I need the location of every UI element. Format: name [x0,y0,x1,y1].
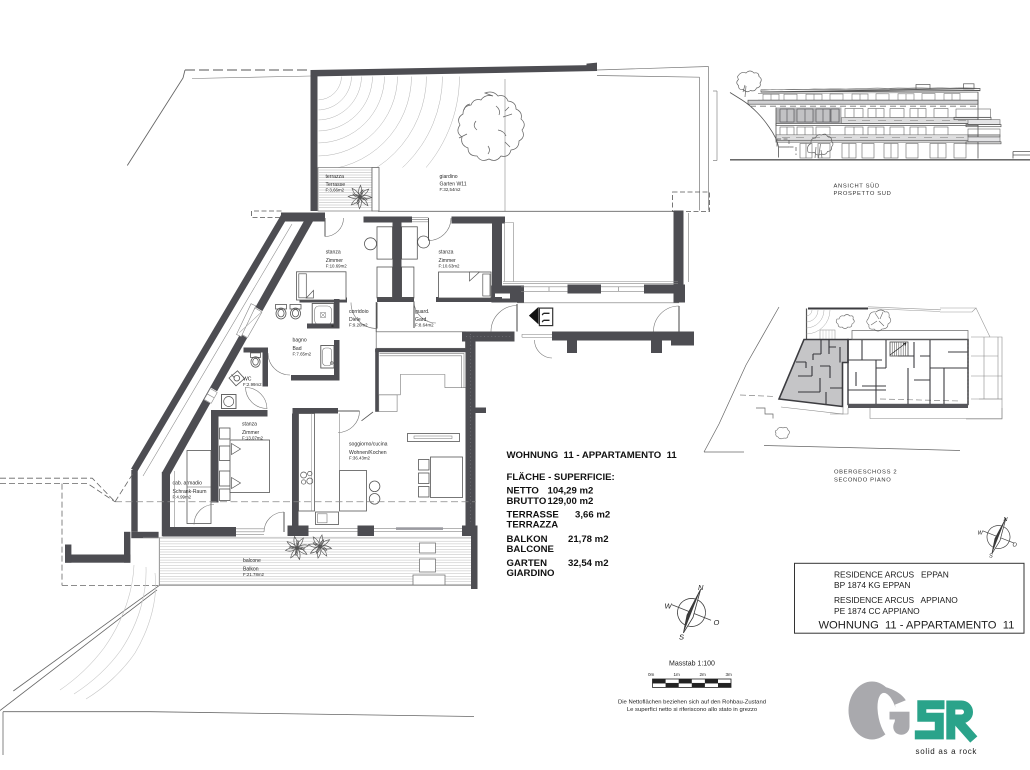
svg-text:N: N [698,583,704,592]
svg-text:GIARDINO: GIARDINO [507,568,556,579]
svg-text:W: W [665,602,673,611]
svg-text:F:21.78m2: F:21.78m2 [243,572,265,577]
svg-text:RESIDENCE ARCUS APPIANO: RESIDENCE ARCUS APPIANO [834,595,958,605]
svg-text:104,29 m2: 104,29 m2 [548,486,594,497]
svg-text:stanza: stanza [242,422,257,428]
svg-text:F:9.20m2: F:9.20m2 [349,323,368,328]
svg-text:SECONDO PIANO: SECONDO PIANO [834,478,891,484]
svg-text:solid as a rock: solid as a rock [916,747,978,756]
svg-text:stanza: stanza [439,249,454,255]
svg-text:S: S [679,633,684,642]
svg-text:Masstab 1:100: Masstab 1:100 [669,661,715,668]
svg-text:stanza: stanza [326,249,341,255]
svg-text:F:7.65m2: F:7.65m2 [293,352,312,357]
svg-text:129,00 m2: 129,00 m2 [548,496,594,507]
svg-text:F:10.63m2: F:10.63m2 [439,264,461,269]
svg-text:ANSICHT SÜD: ANSICHT SÜD [834,183,880,190]
svg-text:F:8.64m2: F:8.64m2 [415,323,434,328]
svg-text:PE 1874 CC APPIANO: PE 1874 CC APPIANO [834,606,920,616]
svg-text:WOHNUNG 11 - APPARTAMENTO 11: WOHNUNG 11 - APPARTAMENTO 11 [819,620,1015,632]
svg-text:F:32,54m2: F:32,54m2 [440,187,462,192]
svg-text:FLÄCHE - SUPERFICIE:: FLÄCHE - SUPERFICIE: [507,472,615,483]
svg-text:terrazza: terrazza [326,174,345,180]
svg-text:BP 1874 KG EPPAN: BP 1874 KG EPPAN [834,580,911,590]
svg-text:bagno: bagno [293,338,307,344]
svg-text:3m: 3m [726,672,733,677]
svg-text:OBERGESCHOSS 2: OBERGESCHOSS 2 [834,470,897,476]
svg-text:S: S [989,554,993,560]
svg-text:guard.: guard. [415,309,429,315]
svg-text:O: O [1013,543,1018,549]
svg-text:BRUTTO: BRUTTO [507,496,547,507]
svg-text:F:3,66m2: F:3,66m2 [326,187,345,192]
svg-text:balcone: balcone [243,558,261,564]
svg-text:WOHNUNG 11 - APPARTAMENTO 11: WOHNUNG 11 - APPARTAMENTO 11 [507,450,678,461]
svg-text:1m: 1m [674,672,681,677]
svg-text:soggiorno/cucina: soggiorno/cucina [349,442,388,448]
svg-text:0m: 0m [648,672,655,677]
svg-text:F:2.99m2: F:2.99m2 [243,382,262,387]
svg-text:F:36.43m2: F:36.43m2 [349,456,371,461]
svg-text:W: W [978,531,984,537]
svg-text:3,66 m2: 3,66 m2 [575,510,610,521]
svg-text:giardino: giardino [440,174,458,180]
svg-text:Die Nettoflächen beziehen sich: Die Nettoflächen beziehen sich auf den R… [618,700,766,706]
svg-text:O: O [714,618,720,627]
svg-text:NETTO: NETTO [507,486,540,497]
svg-text:RESIDENCE ARCUS EPPAN: RESIDENCE ARCUS EPPAN [834,570,949,580]
svg-text:TERRAZZA: TERRAZZA [507,520,559,531]
svg-text:F:10.69m2: F:10.69m2 [326,264,348,269]
svg-text:BALCONE: BALCONE [507,544,555,555]
svg-text:32,54 m2: 32,54 m2 [568,558,609,569]
svg-text:Le superfici netto si riferisc: Le superfici netto si riferiscono allo s… [627,707,758,713]
svg-text:2m: 2m [700,672,707,677]
svg-text:21,78 m2: 21,78 m2 [568,534,609,545]
svg-text:corridoio: corridoio [349,309,369,315]
svg-text:PROSPETTO SUD: PROSPETTO SUD [834,191,892,197]
svg-text:F:4.99m2: F:4.99m2 [173,495,192,500]
